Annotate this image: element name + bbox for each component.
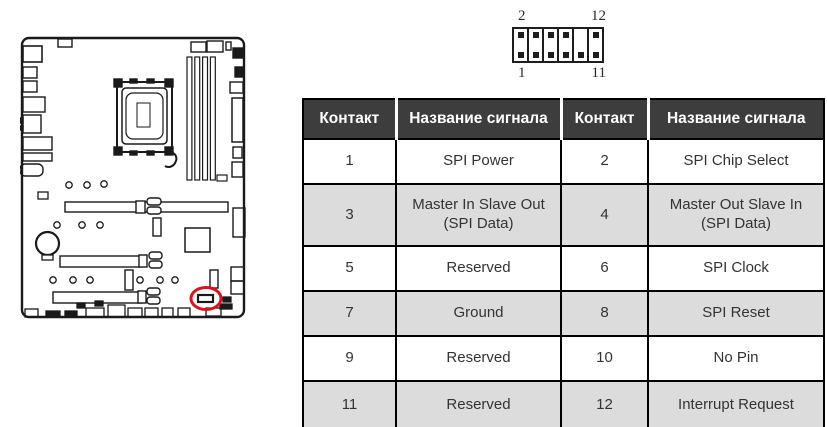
table-row: 3 Master In Slave Out (SPI Data) 4 Maste…	[303, 184, 824, 246]
pin-label-1: 1	[518, 65, 526, 82]
pin-square	[593, 52, 599, 58]
pin-square	[563, 52, 569, 58]
signal-name: Reserved	[396, 381, 561, 427]
signal-name: Reserved	[396, 336, 561, 381]
pin-number: 6	[561, 246, 648, 291]
pin-cell-6	[587, 27, 604, 63]
signal-name: Master Out Slave In (SPI Data)	[648, 184, 824, 246]
pin-square	[548, 52, 554, 58]
pin-square	[518, 52, 524, 58]
rear-io-ports	[20, 46, 52, 176]
pin-label-2: 2	[518, 8, 526, 25]
pin-number: 10	[561, 336, 648, 381]
pin-label-11: 11	[592, 65, 606, 82]
pin-number: 9	[303, 336, 396, 381]
column-header-pin: Контакт	[561, 99, 648, 139]
table-row: 5 Reserved 6 SPI Clock	[303, 246, 824, 291]
pin-header-bottom-labels: 1 11	[512, 65, 610, 82]
table-header: Контакт Название сигнала Контакт Названи…	[303, 99, 824, 139]
signal-name: SPI Power	[396, 139, 561, 184]
tpm-connector	[198, 295, 213, 302]
pin-square	[548, 32, 554, 38]
highlight-ellipse	[191, 288, 221, 310]
pin-square	[533, 52, 539, 58]
dimm-slots	[187, 57, 227, 181]
pin-header-diagram: 2 12	[512, 8, 610, 81]
column-header-pin: Контакт	[303, 99, 396, 139]
pin-number: 3	[303, 184, 396, 246]
pin-header-top-labels: 2 12	[512, 8, 610, 25]
signal-name: Master In Slave Out (SPI Data)	[396, 184, 561, 246]
pin-number: 1	[303, 139, 396, 184]
signal-name: Ground	[396, 291, 561, 336]
bottom-headers	[25, 297, 232, 317]
pin-number: 8	[561, 291, 648, 336]
manual-page: 2 12	[0, 0, 827, 427]
signal-name: SPI Reset	[648, 291, 824, 336]
column-header-signal: Название сигнала	[396, 99, 561, 139]
pin-number: 7	[303, 291, 396, 336]
table-row: 1 SPI Power 2 SPI Chip Select	[303, 139, 824, 184]
pin-square	[533, 32, 539, 38]
pin-square	[593, 32, 599, 38]
pin-number: 4	[561, 184, 648, 246]
table-row: 11 Reserved 12 Interrupt Request	[303, 381, 824, 427]
chipset	[185, 228, 210, 252]
table-row: 9 Reserved 10 No Pin	[303, 336, 824, 381]
pin-signal-table: Контакт Название сигнала Контакт Названи…	[302, 98, 825, 427]
pin-number: 12	[561, 381, 648, 427]
pin-number: 5	[303, 246, 396, 291]
pin-label-12: 12	[591, 8, 606, 25]
pin-square	[518, 32, 524, 38]
signal-name: Interrupt Request	[648, 381, 824, 427]
pin-square	[563, 32, 569, 38]
pin-header-body	[512, 27, 610, 63]
signal-name: Reserved	[396, 246, 561, 291]
motherboard-diagram	[20, 30, 247, 322]
column-header-signal: Название сигнала	[648, 99, 824, 139]
pin-number: 11	[303, 381, 396, 427]
signal-name: No Pin	[648, 336, 824, 381]
signal-name: SPI Clock	[648, 246, 824, 291]
cmos-battery	[36, 232, 59, 260]
pin-square	[578, 52, 584, 58]
cpu-socket	[114, 79, 176, 167]
table-row: 7 Ground 8 SPI Reset	[303, 291, 824, 336]
signal-name: SPI Chip Select	[648, 139, 824, 184]
pin-number: 2	[561, 139, 648, 184]
